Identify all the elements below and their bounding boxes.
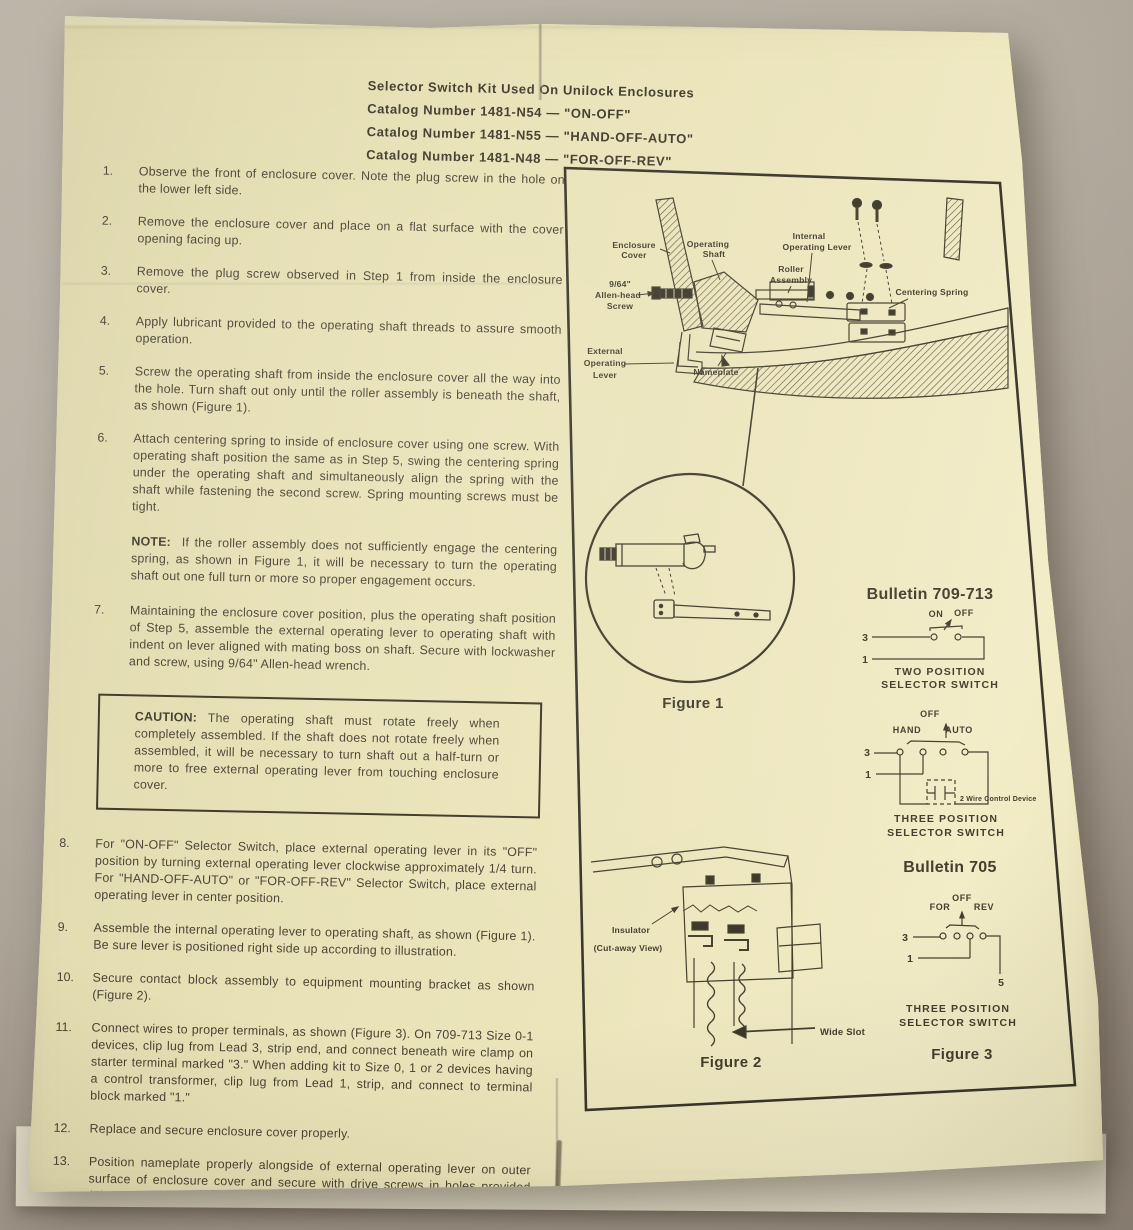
bulletin-705-title: Bulletin 705 bbox=[903, 859, 996, 876]
terminal-1: 1 bbox=[865, 769, 871, 781]
fold-crease-top bbox=[538, 22, 543, 100]
rev-label: REV bbox=[974, 902, 994, 912]
instruction-sheet: Selector Switch Kit Used On Unilock Encl… bbox=[0, 0, 1133, 1230]
three-position-switch-schematic-hoa bbox=[874, 724, 988, 804]
step-item: 1.Observe the front of enclosure cover. … bbox=[102, 163, 565, 206]
three-position-switch-schematic-for-rev bbox=[913, 912, 1000, 974]
steps-section-1: 1.Observe the front of enclosure cover. … bbox=[90, 163, 565, 819]
svg-text:Operating: Operating bbox=[584, 358, 626, 368]
step-item: 6.Attach centering spring to inside of e… bbox=[96, 430, 560, 524]
three-position-caption: THREE POSITION bbox=[894, 813, 998, 825]
enclosure-cover-label: Enclosure bbox=[612, 240, 655, 250]
step-item: 7.Maintaining the enclosure cover positi… bbox=[93, 602, 556, 679]
figure1-caption: Figure 1 bbox=[662, 695, 724, 712]
svg-text:SELECTOR SWITCH: SELECTOR SWITCH bbox=[899, 1017, 1017, 1029]
svg-text:Operating Lever: Operating Lever bbox=[783, 242, 852, 252]
bulletin-709-713-title: Bulletin 709-713 bbox=[867, 586, 994, 603]
figure3-caption: Figure 3 bbox=[931, 1046, 993, 1063]
step-item: 2.Remove the enclosure cover and place o… bbox=[101, 213, 564, 256]
internal-operating-lever-label: Internal bbox=[793, 231, 826, 241]
step-item: 13.Position nameplate properly alongside… bbox=[52, 1153, 531, 1214]
svg-text:Screw: Screw bbox=[607, 301, 633, 311]
wire-control-device-label: 2 Wire Control Device bbox=[960, 796, 1037, 803]
caution-box: CAUTION: The operating shaft must rotate… bbox=[96, 694, 542, 819]
svg-text:Assembly: Assembly bbox=[770, 275, 812, 285]
off-label: OFF bbox=[920, 709, 940, 719]
three-position-caption: THREE POSITION bbox=[906, 1003, 1010, 1015]
off-label: OFF bbox=[954, 608, 974, 618]
wide-slot-label: Wide Slot bbox=[820, 1027, 866, 1038]
step-item: 4.Apply lubricant provided to the operat… bbox=[99, 313, 562, 356]
allen-screw-label: 9/64" bbox=[609, 279, 631, 289]
step-item: 12.Replace and secure enclosure cover pr… bbox=[53, 1120, 531, 1147]
figure1-detail-circle bbox=[586, 474, 794, 682]
terminal-1: 1 bbox=[862, 654, 868, 666]
step-item: 9.Assemble the internal operating lever … bbox=[57, 919, 536, 963]
insulator-label: Insulator bbox=[612, 925, 651, 935]
step-item: 5.Screw the operating shaft from inside … bbox=[98, 363, 561, 423]
step-item: 11.Connect wires to proper terminals, as… bbox=[54, 1019, 534, 1114]
figure2-caption: Figure 2 bbox=[700, 1054, 762, 1071]
step-item: 10.Secure contact block assembly to equi… bbox=[56, 969, 535, 1013]
roller-assembly-label: Roller bbox=[778, 264, 804, 274]
svg-text:Lever: Lever bbox=[593, 370, 617, 380]
svg-text:Allen-head: Allen-head bbox=[595, 290, 641, 300]
step-item: 8.For "ON-OFF" Selector Switch, place ex… bbox=[58, 835, 537, 913]
two-position-switch-schematic bbox=[872, 620, 984, 659]
note-paragraph: NOTE: If the roller assembly does not su… bbox=[131, 533, 558, 593]
two-position-caption: TWO POSITION bbox=[895, 666, 986, 678]
terminal-3: 3 bbox=[902, 932, 908, 944]
steps-section-2: 8.For "ON-OFF" Selector Switch, place ex… bbox=[52, 835, 537, 1214]
for-label: FOR bbox=[930, 902, 951, 912]
terminal-1: 1 bbox=[907, 953, 913, 965]
external-operating-lever-label: External bbox=[587, 346, 623, 356]
terminal-5: 5 bbox=[998, 977, 1004, 989]
auto-label: AUTO bbox=[945, 725, 973, 735]
terminal-3: 3 bbox=[864, 747, 870, 759]
svg-text:SELECTOR SWITCH: SELECTOR SWITCH bbox=[881, 679, 999, 691]
off-label: OFF bbox=[952, 893, 972, 903]
fold-crease-mark bbox=[555, 1140, 562, 1194]
svg-text:Cover: Cover bbox=[621, 250, 647, 260]
centering-spring-label: Centering Spring bbox=[896, 287, 969, 297]
figure-panel: Enclosure Cover Operating Shaft Internal… bbox=[556, 156, 1086, 1121]
operating-shaft-label: Operating bbox=[687, 239, 729, 249]
cutaway-view-label: (Cut-away View) bbox=[594, 943, 663, 953]
svg-text:Shaft: Shaft bbox=[703, 249, 725, 259]
terminal-3: 3 bbox=[862, 632, 868, 644]
nameplate-label: Nameplate bbox=[693, 367, 738, 377]
on-label: ON bbox=[929, 609, 944, 619]
hand-label: HAND bbox=[893, 725, 921, 735]
svg-text:SELECTOR SWITCH: SELECTOR SWITCH bbox=[887, 827, 1005, 839]
fold-crease-horizontal bbox=[62, 283, 562, 286]
figure2-leaders bbox=[652, 907, 678, 924]
photo-of-instruction-sheet: Selector Switch Kit Used On Unilock Encl… bbox=[0, 0, 1133, 1230]
instruction-steps: 1.Observe the front of enclosure cover. … bbox=[52, 162, 565, 1230]
